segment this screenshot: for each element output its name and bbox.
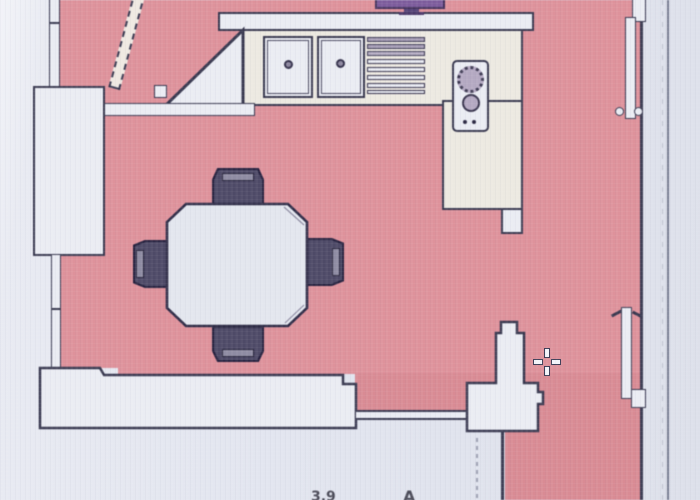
kitchen-counter-foot — [501, 208, 523, 234]
hob-burner-large — [457, 66, 484, 93]
wall-bottom-band — [38, 364, 360, 434]
floor-plan-scan[interactable]: 3.9 A — [0, 0, 700, 500]
hob-burner-small — [462, 94, 480, 112]
crosshair-cursor — [533, 348, 561, 376]
hob-dot — [472, 120, 476, 124]
plan-drawing: 3.9 A — [0, 0, 700, 500]
wall-block-left — [33, 86, 105, 256]
sink-drain — [284, 60, 293, 69]
counter-corner-diagonal — [162, 27, 246, 109]
sink-drain — [336, 59, 345, 68]
entry-door-pivot — [154, 85, 167, 98]
wall-joint-tick — [49, 22, 60, 24]
window-leaf-bottom — [621, 307, 632, 399]
partial-dimension-text: 3.9 — [311, 489, 336, 500]
dining-table — [164, 201, 310, 329]
hob-panel — [452, 60, 489, 132]
chair-bottom-backrest — [222, 349, 254, 357]
chair-top-backrest — [222, 173, 254, 181]
hob-dot — [463, 120, 467, 124]
wall-line-below — [501, 431, 504, 500]
wall-band-entry — [104, 103, 255, 116]
window-handle-knob — [634, 107, 643, 116]
wall-pillar-bottom — [463, 318, 547, 434]
sink-basin — [263, 36, 313, 98]
adjacent-room-floor — [505, 430, 642, 500]
dashed-line — [476, 438, 478, 500]
tv-base — [399, 12, 424, 15]
wall-left-upper — [49, 0, 60, 91]
chair-left-backrest — [136, 250, 144, 278]
tv-unit — [375, 0, 445, 9]
doorway-threshold — [356, 410, 468, 420]
wall-right-line — [640, 0, 643, 500]
wall-left-lower — [51, 254, 61, 370]
wall-right-bottom-step — [631, 389, 646, 408]
wall-joint-tick — [51, 308, 61, 310]
drainer-rack — [367, 37, 425, 95]
sink-basin — [317, 36, 365, 98]
sheet-edge-line-faint — [662, 0, 663, 500]
chair-right-backrest — [332, 248, 340, 276]
window-leaf-top — [625, 17, 636, 119]
partial-symbol-text: A — [403, 487, 415, 500]
window-handle-knob — [615, 107, 624, 116]
sheet-edge-line — [667, 0, 669, 500]
